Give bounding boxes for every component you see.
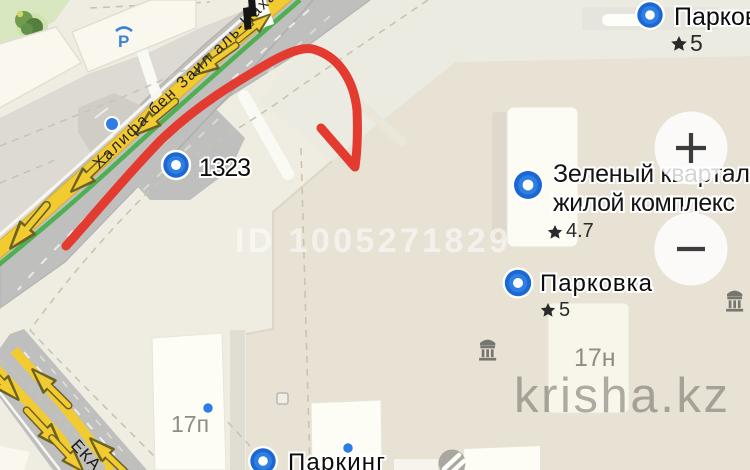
svg-text:Парковка: Парковка bbox=[674, 3, 750, 31]
svg-text:4.7: 4.7 bbox=[566, 220, 594, 242]
svg-text:5: 5 bbox=[559, 299, 570, 321]
svg-text:ID 1005271829: ID 1005271829 bbox=[235, 222, 508, 260]
svg-text:1323: 1323 bbox=[199, 154, 251, 182]
svg-text:Паркинг: Паркинг bbox=[288, 449, 385, 470]
svg-text:krisha.kz: krisha.kz bbox=[514, 369, 728, 423]
svg-text:5: 5 bbox=[690, 30, 703, 56]
svg-text:17п: 17п bbox=[171, 411, 209, 437]
svg-text:Парковка: Парковка bbox=[540, 270, 653, 297]
svg-text:17н: 17н bbox=[574, 344, 616, 372]
svg-text:P: P bbox=[118, 32, 129, 51]
svg-text:жилой комплекс: жилой комплекс bbox=[553, 189, 735, 217]
